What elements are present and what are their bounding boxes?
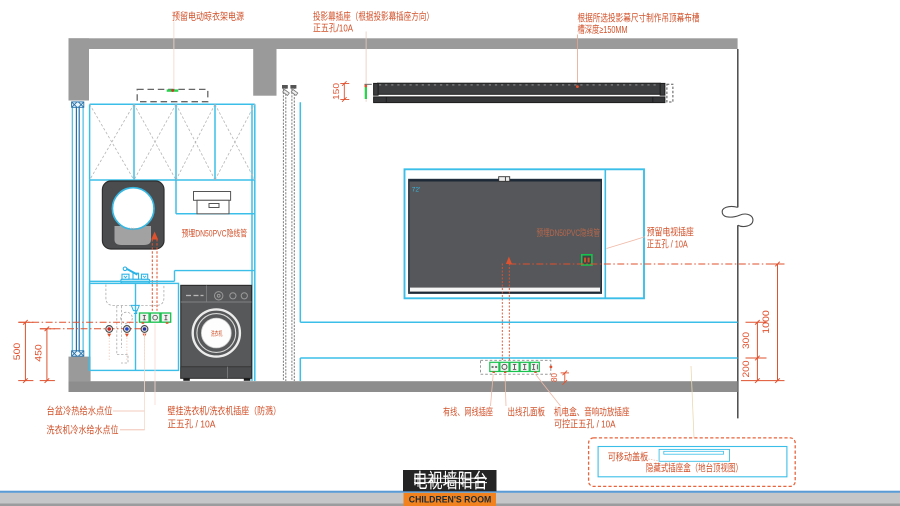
svg-text:出线孔面板: 出线孔面板: [508, 405, 546, 418]
svg-text:CHILDREN'S ROOM: CHILDREN'S ROOM: [409, 495, 492, 505]
svg-text:正五孔 / 10A: 正五孔 / 10A: [647, 238, 688, 250]
svg-text:可移动盖板: 可移动盖板: [608, 451, 649, 464]
svg-text:洗衣机: 洗衣机: [211, 329, 223, 338]
svg-text:槽深度≥150MM: 槽深度≥150MM: [578, 23, 628, 36]
svg-text:200: 200: [741, 361, 751, 378]
svg-text:150: 150: [331, 83, 341, 100]
svg-text:可控正五孔 / 10A: 可控正五孔 / 10A: [554, 417, 616, 430]
svg-text:有线、网线插座: 有线、网线插座: [443, 405, 493, 418]
svg-text:Haier: Haier: [129, 227, 138, 231]
svg-text:电视墙阳台: 电视墙阳台: [413, 469, 488, 492]
svg-text:根据所选投影幕尺寸制作吊顶幕布槽: 根据所选投影幕尺寸制作吊顶幕布槽: [578, 12, 700, 25]
svg-text:80: 80: [550, 373, 559, 382]
svg-text:正五孔/10A: 正五孔/10A: [313, 22, 353, 34]
svg-text:正五孔 / 10A: 正五孔 / 10A: [168, 418, 216, 430]
svg-text:预埋DN50PVC隐线管: 预埋DN50PVC隐线管: [537, 227, 601, 238]
svg-text:机电盒、音响功放插座: 机电盒、音响功放插座: [554, 405, 630, 418]
svg-text:预留电动晾衣架电源: 预留电动晾衣架电源: [172, 10, 244, 23]
svg-text:投影幕插座（根据投影幕插座方向）: 投影幕插座（根据投影幕插座方向）: [313, 10, 434, 23]
svg-text:预埋DN50PVC隐线管: 预埋DN50PVC隐线管: [182, 227, 247, 238]
svg-text:隐藏式插座盒（地台顶视图）: 隐藏式插座盒（地台顶视图）: [646, 461, 743, 474]
svg-text:300: 300: [741, 332, 751, 349]
svg-text:台盆冷热给水点位: 台盆冷热给水点位: [47, 405, 113, 418]
svg-text:72′: 72′: [412, 187, 421, 194]
svg-text:壁挂洗衣机/洗衣机插座（防溅）: 壁挂洗衣机/洗衣机插座（防溅）: [168, 405, 282, 418]
svg-text:预留电视插座: 预留电视插座: [647, 225, 694, 238]
svg-text:洗衣机冷水给水点位: 洗衣机冷水给水点位: [47, 423, 119, 436]
svg-text:450: 450: [34, 344, 44, 362]
svg-text:500: 500: [12, 343, 22, 361]
